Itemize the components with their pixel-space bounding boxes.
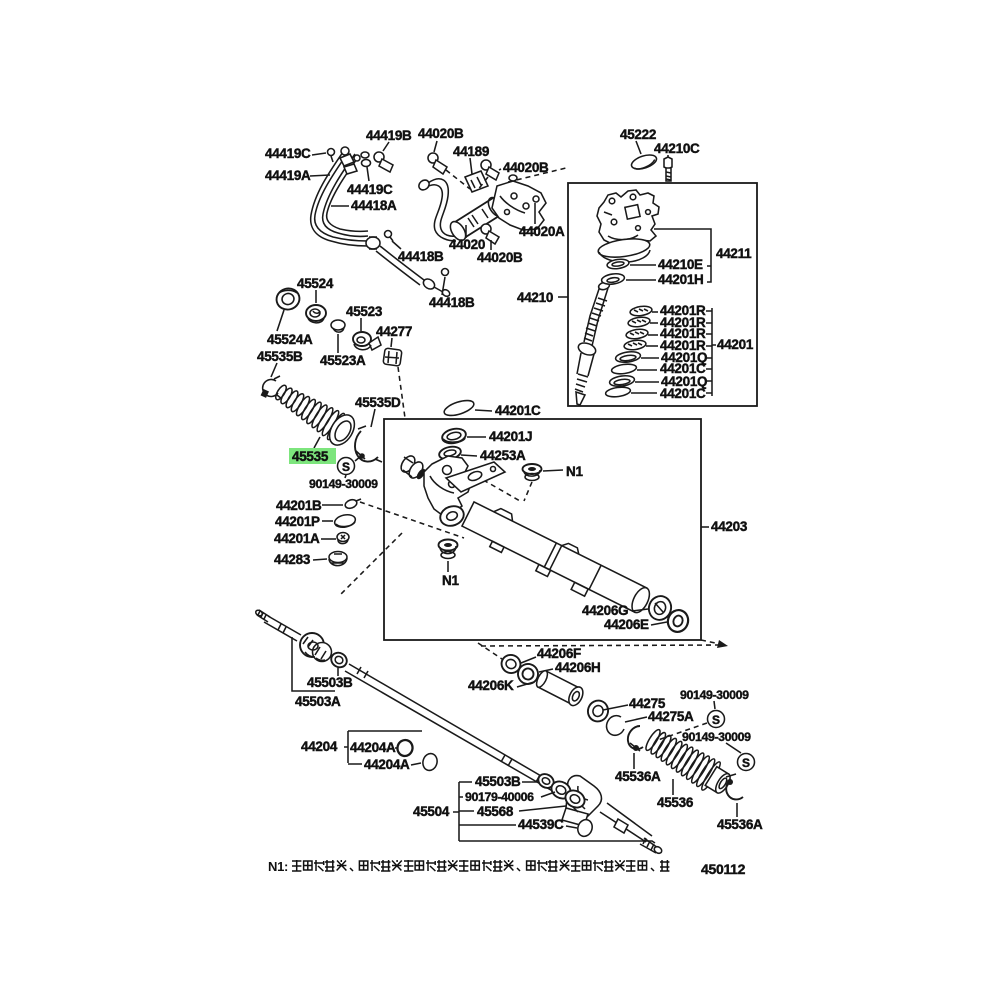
svg-text:45524: 45524: [297, 276, 334, 291]
svg-text:450112: 450112: [701, 861, 746, 877]
svg-text:44419B: 44419B: [366, 128, 412, 143]
svg-text:44020A: 44020A: [519, 224, 565, 239]
svg-text:44539C: 44539C: [518, 817, 564, 832]
svg-text:44210: 44210: [517, 290, 553, 305]
svg-text:44189: 44189: [453, 144, 489, 159]
svg-text:45503B: 45503B: [307, 675, 353, 690]
svg-text:44206G: 44206G: [582, 603, 628, 618]
svg-text:45535: 45535: [292, 449, 329, 464]
svg-text:44419C: 44419C: [265, 146, 311, 161]
svg-text:44206K: 44206K: [468, 678, 514, 693]
svg-text:44201C: 44201C: [660, 386, 706, 401]
svg-text:44204A: 44204A: [364, 757, 410, 772]
svg-text:44201B: 44201B: [276, 498, 322, 513]
svg-text:45536A: 45536A: [615, 769, 661, 784]
svg-text:44020B: 44020B: [503, 160, 549, 175]
svg-text:90149-30009: 90149-30009: [680, 688, 749, 702]
svg-text:44210C: 44210C: [654, 141, 700, 156]
svg-text:45523A: 45523A: [320, 353, 366, 368]
svg-text:44275A: 44275A: [648, 709, 694, 724]
svg-text:90179-40006: 90179-40006: [465, 790, 534, 804]
svg-text:44253A: 44253A: [480, 448, 526, 463]
svg-text:S: S: [342, 460, 350, 474]
svg-text:44419A: 44419A: [265, 168, 311, 183]
svg-text:45523: 45523: [346, 304, 383, 319]
svg-text:44204A: 44204A: [350, 740, 396, 755]
svg-text:44020B: 44020B: [418, 126, 464, 141]
svg-text:44418A: 44418A: [351, 198, 397, 213]
svg-text:44419C: 44419C: [347, 182, 393, 197]
svg-text:45568: 45568: [477, 804, 514, 819]
svg-text:44020B: 44020B: [477, 250, 523, 265]
svg-text:44201C: 44201C: [495, 403, 541, 418]
svg-text:45524A: 45524A: [267, 332, 313, 347]
svg-text:45503B: 45503B: [475, 774, 521, 789]
svg-text:44206E: 44206E: [604, 617, 649, 632]
svg-text:45535D: 45535D: [355, 395, 401, 410]
svg-text:44201: 44201: [717, 337, 754, 352]
svg-text:45536A: 45536A: [717, 817, 763, 832]
svg-text:S: S: [712, 713, 720, 727]
svg-text:44206H: 44206H: [555, 660, 601, 675]
svg-text:45222: 45222: [620, 127, 656, 142]
svg-text:45535B: 45535B: [257, 349, 303, 364]
svg-text:44283: 44283: [274, 552, 311, 567]
svg-text:45536: 45536: [657, 795, 694, 810]
svg-text:44201P: 44201P: [275, 514, 320, 529]
svg-text:45504: 45504: [413, 804, 450, 819]
svg-text:44201J: 44201J: [489, 429, 532, 444]
svg-text:90149-30009: 90149-30009: [309, 477, 378, 491]
svg-text:45503A: 45503A: [295, 694, 341, 709]
svg-text:44418B: 44418B: [429, 295, 475, 310]
svg-text:N1:: N1:: [268, 859, 288, 874]
svg-text:44206F: 44206F: [537, 646, 581, 661]
svg-text:44204: 44204: [301, 739, 338, 754]
svg-text:44418B: 44418B: [398, 249, 444, 264]
svg-text:S: S: [742, 756, 750, 770]
svg-text:44210E: 44210E: [658, 257, 703, 272]
svg-text:N1: N1: [566, 464, 583, 479]
svg-text:44201A: 44201A: [274, 531, 320, 546]
svg-text:44277: 44277: [376, 324, 412, 339]
svg-text:44201H: 44201H: [658, 272, 704, 287]
svg-text:44203: 44203: [711, 519, 748, 534]
svg-text:N1: N1: [442, 573, 459, 588]
svg-text:44211: 44211: [716, 246, 752, 261]
svg-text:90149-30009: 90149-30009: [682, 730, 751, 744]
